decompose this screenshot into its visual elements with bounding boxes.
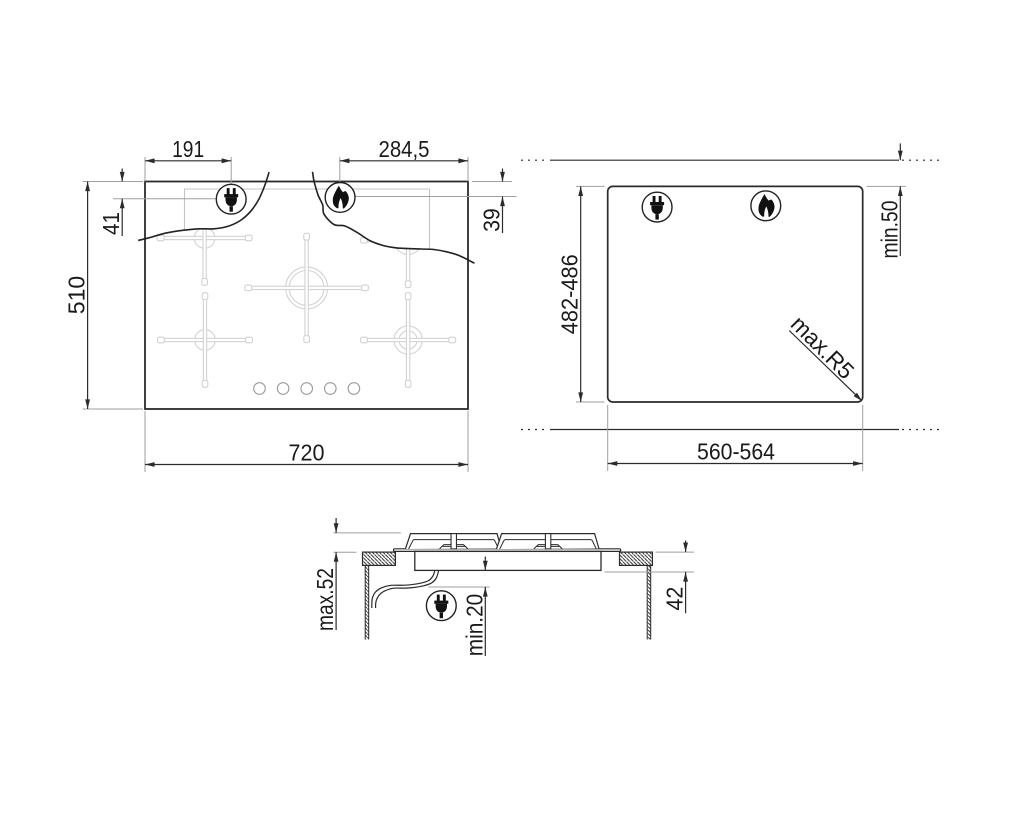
svg-text:191: 191 (172, 136, 204, 162)
svg-text:284,5: 284,5 (379, 136, 430, 162)
svg-text:max.52: max.52 (312, 568, 338, 631)
svg-text:510: 510 (64, 276, 90, 315)
svg-text:min.50: min.50 (876, 201, 902, 259)
svg-text:482-486: 482-486 (557, 254, 583, 334)
svg-text:560-564: 560-564 (697, 439, 775, 465)
svg-text:min.20: min.20 (461, 594, 487, 657)
svg-text:42: 42 (662, 587, 688, 611)
svg-text:39: 39 (479, 208, 505, 232)
svg-text:41: 41 (98, 212, 124, 235)
svg-text:720: 720 (289, 440, 325, 466)
